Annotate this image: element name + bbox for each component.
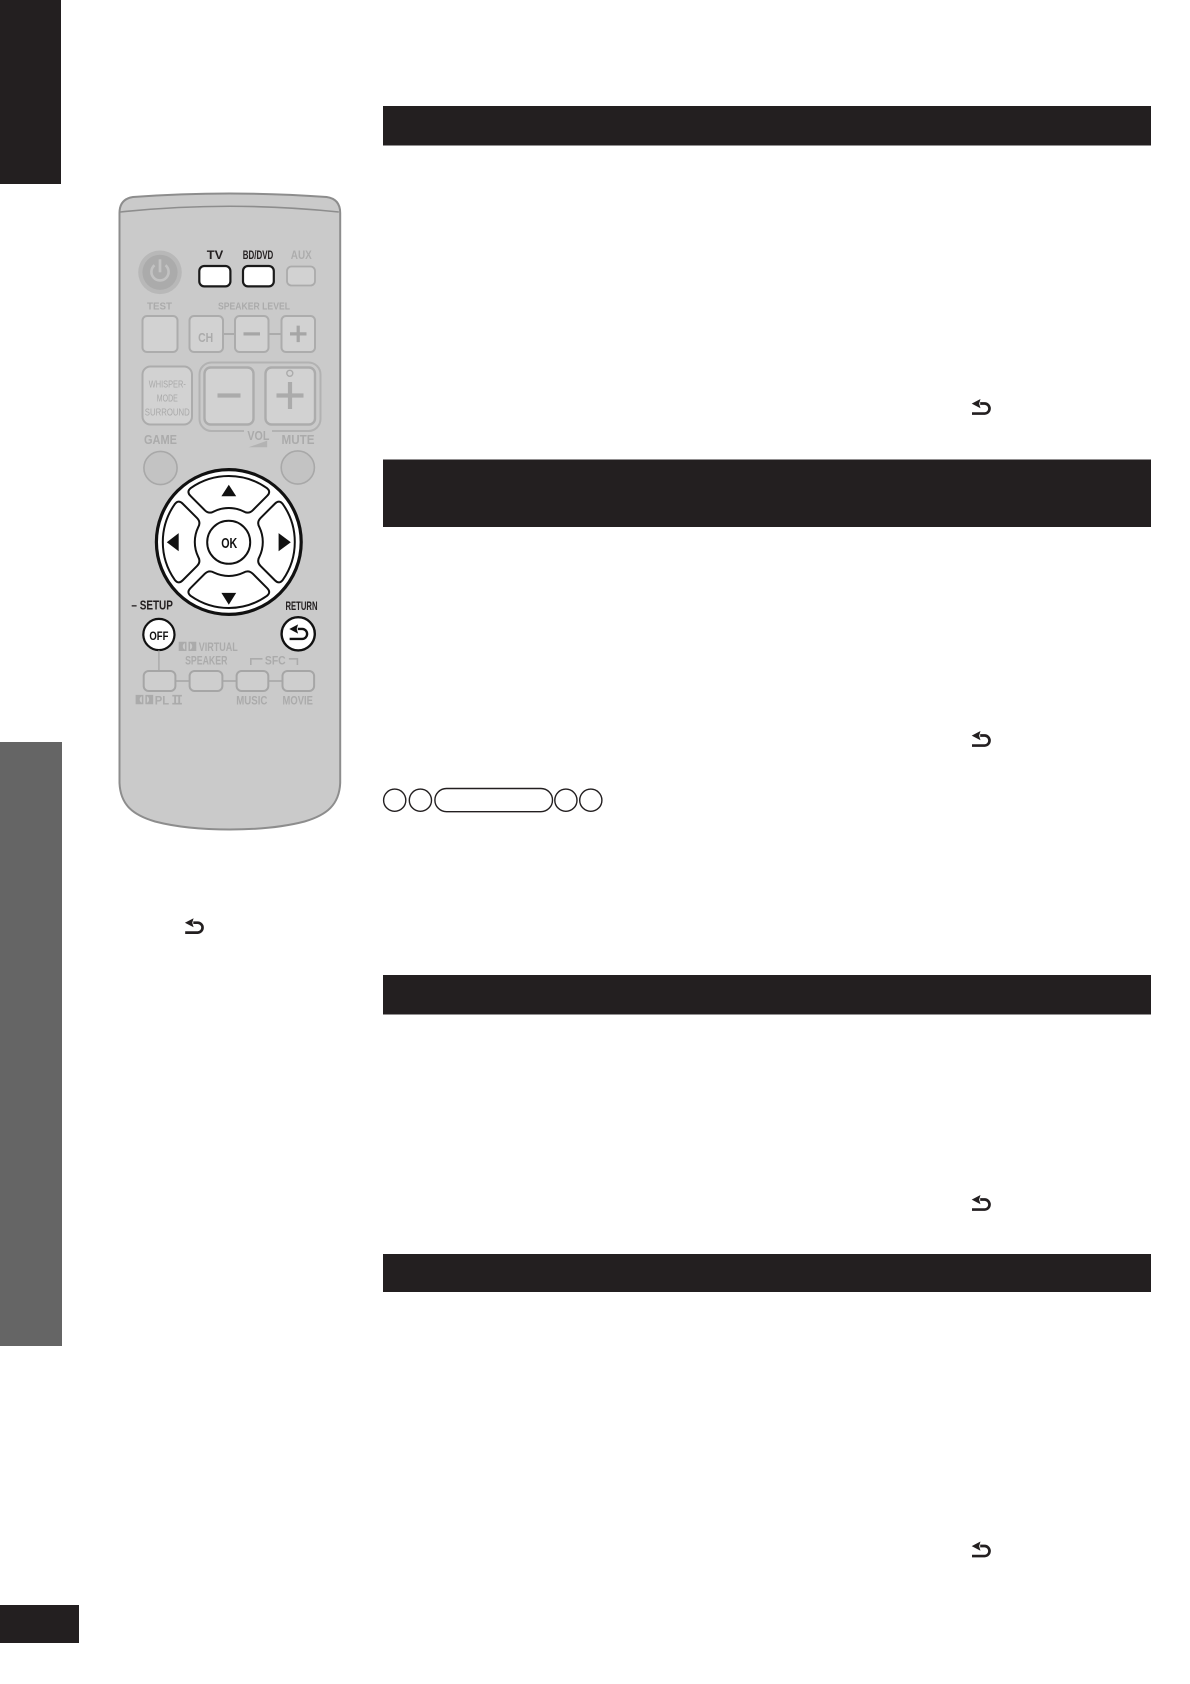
svg-text:VOL: VOL (247, 429, 269, 443)
svg-text:PL: PL (155, 694, 169, 708)
svg-text:OFF: OFF (149, 631, 168, 643)
svg-text:MODE: MODE (157, 393, 178, 404)
svg-text:BD/DVD: BD/DVD (243, 248, 274, 262)
svg-text:WHISPER-: WHISPER- (149, 379, 186, 390)
svg-text:AUX: AUX (291, 248, 312, 262)
svg-text:MOVIE: MOVIE (283, 694, 313, 708)
svg-text:– SETUP: – SETUP (131, 598, 173, 613)
svg-text:SFC: SFC (265, 654, 286, 668)
svg-text:SPEAKER LEVEL: SPEAKER LEVEL (218, 301, 290, 313)
svg-text:MUSIC: MUSIC (236, 694, 267, 708)
svg-text:SURROUND: SURROUND (145, 407, 190, 418)
svg-text:VIRTUAL: VIRTUAL (199, 640, 238, 654)
svg-text:TEST: TEST (147, 301, 173, 313)
svg-text:OK: OK (221, 536, 237, 552)
svg-text:GAME: GAME (144, 433, 177, 447)
svg-text:SPEAKER: SPEAKER (185, 654, 228, 668)
svg-text:RETURN: RETURN (286, 601, 318, 613)
svg-text:TV: TV (207, 248, 224, 262)
svg-text:MUTE: MUTE (282, 433, 315, 447)
svg-text:CH: CH (198, 330, 213, 345)
